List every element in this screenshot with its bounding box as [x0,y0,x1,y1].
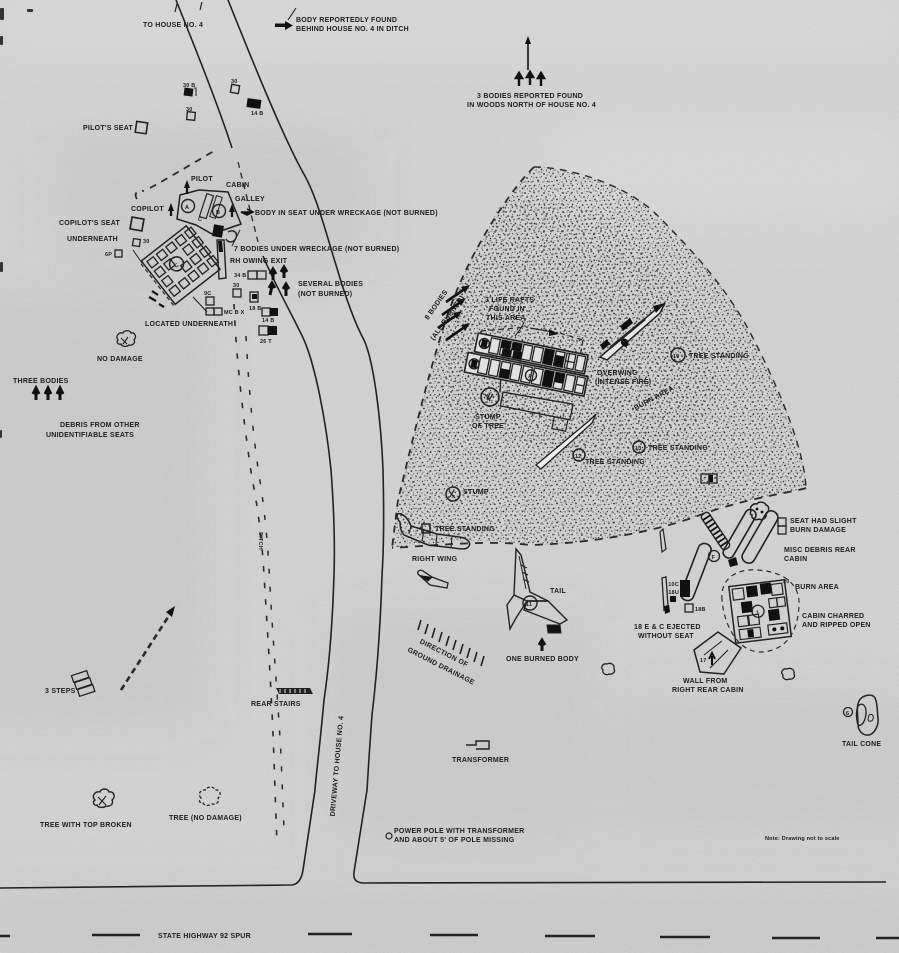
svg-text:LOCATED UNDERNEATH: LOCATED UNDERNEATH [145,321,233,328]
svg-text:A: A [185,205,189,211]
svg-text:14 B: 14 B [262,318,274,324]
svg-text:COPILOT'S SEAT: COPILOT'S SEAT [59,220,121,227]
svg-text:CABIN CHARRED: CABIN CHARRED [802,613,864,620]
svg-text:17: 17 [700,658,707,664]
svg-text:STATE HIGHWAY 92 SPUR: STATE HIGHWAY 92 SPUR [158,933,251,940]
svg-text:34 B: 34 B [234,273,246,279]
svg-text:14 B: 14 B [251,111,263,117]
svg-text:SEVERAL BODIES: SEVERAL BODIES [298,281,363,288]
svg-text:UNDERNEATH: UNDERNEATH [67,236,118,243]
svg-text:OVERWING: OVERWING [597,370,638,377]
svg-text:RH OWING EXIT: RH OWING EXIT [230,258,288,265]
svg-text:REAR STAIRS: REAR STAIRS [251,701,301,708]
svg-text:TRANSFORMER: TRANSFORMER [452,757,509,764]
svg-text:26 T: 26 T [260,339,272,345]
svg-text:BODY REPORTEDLY FOUND: BODY REPORTEDLY FOUND [296,17,397,24]
svg-text:COPILOT: COPILOT [131,206,164,213]
svg-text:(INTENSE FIRE): (INTENSE FIRE) [595,379,651,386]
svg-text:C: C [198,217,202,223]
svg-text:20: 20 [783,579,790,585]
svg-text:30: 30 [233,283,240,289]
svg-text:3 STEPS: 3 STEPS [45,688,76,695]
svg-text:UNIDENTIFIABLE SEATS: UNIDENTIFIABLE SEATS [46,432,134,439]
svg-text:18 E & C EJECTED: 18 E & C EJECTED [634,624,701,631]
svg-text:TREE STANDING: TREE STANDING [689,353,749,360]
svg-text:TREE STANDING: TREE STANDING [435,526,495,533]
svg-text:12: 12 [575,454,582,460]
svg-text:18B: 18B [695,607,706,613]
svg-text:CABIN: CABIN [226,182,249,189]
svg-text:GALLEY: GALLEY [235,196,265,203]
svg-text:WALL FROM: WALL FROM [683,678,728,685]
svg-text:THREE BODIES: THREE BODIES [13,378,69,385]
svg-text:6: 6 [846,711,849,717]
svg-text:BURN AREA: BURN AREA [795,584,839,591]
svg-text:ONE BURNED BODY: ONE BURNED BODY [506,656,579,663]
svg-text:3 LIFE RAFTS: 3 LIFE RAFTS [485,297,534,304]
svg-text:6P: 6P [105,252,112,258]
svg-text:F: F [712,555,716,561]
svg-text:POWER POLE WITH TRANSFORMER: POWER POLE WITH TRANSFORMER [394,828,524,835]
svg-text:10C: 10C [668,582,679,588]
svg-text:MC B X: MC B X [224,310,245,316]
svg-text:BODY IN SEAT UNDER WRECKAGE (N: BODY IN SEAT UNDER WRECKAGE (NOT BURNED) [255,210,438,217]
svg-text:FOUND IN: FOUND IN [489,306,525,313]
svg-text:TO HOUSE NO. 4: TO HOUSE NO. 4 [143,22,203,29]
svg-text:10: 10 [673,354,680,360]
svg-text:B: B [216,210,220,216]
svg-text:WITHOUT SEAT: WITHOUT SEAT [638,633,694,640]
svg-text:TREE (NO DAMAGE): TREE (NO DAMAGE) [169,815,242,822]
svg-text:PILOT'S SEAT: PILOT'S SEAT [83,125,134,132]
svg-text:18 B: 18 B [249,306,261,312]
svg-text:OF TREE: OF TREE [472,423,504,430]
svg-text:30: 30 [143,239,150,245]
svg-text:TAIL: TAIL [550,588,567,595]
svg-text:NO DAMAGE: NO DAMAGE [97,356,143,363]
svg-text:TAIL CONE: TAIL CONE [842,741,881,748]
svg-text:STUMP: STUMP [463,489,489,496]
svg-text:BEHIND HOUSE NO. 4 IN DITCH: BEHIND HOUSE NO. 4 IN DITCH [296,26,409,33]
svg-text:3 BODIES REPORTED FOUND: 3 BODIES REPORTED FOUND [477,93,583,100]
svg-text:BURN DAMAGE: BURN DAMAGE [790,527,846,534]
svg-text:MISC DEBRIS REAR: MISC DEBRIS REAR [784,547,856,554]
svg-text:TREE STANDING: TREE STANDING [585,459,645,466]
svg-text:AND ABOUT 5' OF POLE MISSING: AND ABOUT 5' OF POLE MISSING [394,837,515,844]
svg-text:RIGHT WING: RIGHT WING [412,556,458,563]
svg-text:AND RIPPED OPEN: AND RIPPED OPEN [802,622,871,629]
svg-text:STUMP: STUMP [475,414,501,421]
svg-text:(NOT BURNED): (NOT BURNED) [298,291,352,298]
svg-text:7 BODIES UNDER WRECKAGE (NOT B: 7 BODIES UNDER WRECKAGE (NOT BURNED) [234,246,399,253]
svg-text:TREE WITH TOP BROKEN: TREE WITH TOP BROKEN [40,822,132,829]
svg-text:RIGHT REAR CABIN: RIGHT REAR CABIN [672,687,744,694]
svg-text:CABIN: CABIN [784,556,807,563]
svg-text:IN WOODS NORTH OF HOUSE NO. 4: IN WOODS NORTH OF HOUSE NO. 4 [467,102,596,109]
svg-text:18U: 18U [668,590,679,596]
svg-text:11: 11 [526,602,532,608]
svg-text:TREE STANDING: TREE STANDING [648,445,708,452]
svg-text:9C: 9C [204,291,211,297]
svg-text:13: 13 [635,446,642,452]
svg-text:PILOT: PILOT [191,176,213,183]
svg-text:DITCH: DITCH [257,532,263,550]
svg-text:Note: Drawing not to scale: Note: Drawing not to scale [765,836,840,842]
svg-text:SEAT HAD SLIGHT: SEAT HAD SLIGHT [790,518,857,525]
svg-text:THIS AREA: THIS AREA [486,315,526,322]
svg-text:DEBRIS FROM OTHER: DEBRIS FROM OTHER [60,422,140,429]
